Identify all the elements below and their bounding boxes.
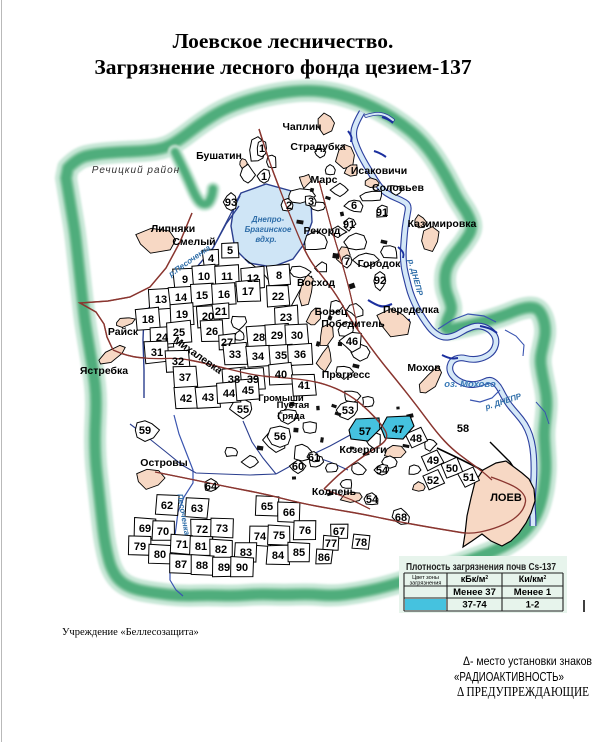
svg-text:93: 93: [225, 197, 237, 209]
svg-text:76: 76: [299, 525, 311, 537]
svg-text:28: 28: [253, 332, 265, 344]
svg-text:Менее 37: Менее 37: [453, 587, 496, 598]
svg-text:59: 59: [139, 425, 151, 437]
svg-text:52: 52: [427, 475, 439, 487]
svg-text:62: 62: [161, 500, 173, 512]
svg-text:Чаплин: Чаплин: [282, 121, 321, 133]
svg-text:1: 1: [259, 143, 265, 155]
svg-text:46: 46: [346, 336, 358, 348]
svg-text:71: 71: [176, 539, 188, 551]
svg-text:56: 56: [274, 431, 286, 443]
svg-text:84: 84: [272, 550, 285, 562]
svg-text:Менее 1: Менее 1: [514, 587, 552, 598]
svg-text:32: 32: [172, 356, 184, 368]
svg-text:72: 72: [196, 524, 208, 536]
svg-text:70: 70: [157, 526, 169, 538]
svg-text:Страдубка: Страдубка: [290, 141, 345, 153]
svg-text:вдхр.: вдхр.: [255, 235, 276, 244]
svg-text:Днепро-: Днепро-: [251, 215, 285, 224]
svg-text:Островы: Островы: [140, 457, 187, 469]
svg-text:2: 2: [286, 200, 292, 212]
svg-text:81: 81: [195, 541, 207, 553]
svg-text:61: 61: [308, 452, 320, 464]
svg-text:67: 67: [333, 526, 345, 538]
svg-text:91: 91: [343, 219, 355, 231]
svg-text:Плотность загрязнения почв Cs-: Плотность загрязнения почв Cs-137: [406, 562, 556, 573]
svg-text:45: 45: [242, 385, 254, 397]
svg-text:Ястребка: Ястребка: [80, 365, 128, 377]
svg-text:37: 37: [179, 372, 191, 384]
svg-text:Бушатин: Бушатин: [196, 150, 242, 162]
svg-text:63: 63: [191, 503, 203, 515]
svg-text:Липняки: Липняки: [151, 223, 195, 235]
svg-text:Козероги: Козероги: [339, 444, 386, 456]
svg-text:загрязнения: загрязнения: [410, 581, 442, 587]
svg-text:ЛОЕВ: ЛОЕВ: [490, 492, 522, 504]
svg-text:Соловьев: Соловьев: [372, 182, 424, 194]
svg-text:85: 85: [293, 547, 305, 559]
svg-text:41: 41: [298, 380, 310, 392]
svg-text:5: 5: [227, 245, 233, 257]
svg-text:11: 11: [221, 271, 233, 283]
svg-text:29: 29: [271, 330, 283, 342]
svg-text:27: 27: [221, 337, 233, 349]
svg-text:Рекорд: Рекорд: [304, 225, 341, 237]
svg-text:7: 7: [344, 256, 350, 268]
svg-text:Казимировка: Казимировка: [408, 218, 477, 230]
svg-text:90: 90: [236, 562, 248, 574]
svg-text:Победитель: Победитель: [321, 318, 385, 330]
svg-text:49: 49: [427, 455, 439, 467]
svg-text:91: 91: [376, 207, 388, 219]
svg-text:33: 33: [229, 349, 241, 361]
svg-text:82: 82: [215, 544, 227, 556]
svg-text:77: 77: [325, 538, 337, 550]
svg-text:8: 8: [276, 270, 282, 282]
svg-text:24: 24: [156, 332, 169, 344]
svg-text:51: 51: [463, 472, 475, 484]
svg-text:19: 19: [176, 309, 188, 321]
svg-text:38: 38: [228, 374, 240, 386]
svg-text:Восход: Восход: [297, 277, 335, 289]
svg-text:30: 30: [291, 330, 303, 342]
svg-text:53: 53: [342, 405, 354, 417]
svg-text:Брагинское: Брагинское: [245, 225, 292, 234]
svg-text:22: 22: [272, 291, 284, 303]
svg-text:26: 26: [206, 326, 218, 338]
svg-text:44: 44: [223, 388, 236, 400]
svg-text:12: 12: [247, 273, 259, 285]
svg-text:Мохов: Мохов: [407, 362, 441, 374]
svg-text:16: 16: [218, 289, 230, 301]
svg-text:Прогресс: Прогресс: [322, 369, 371, 381]
svg-text:47: 47: [392, 424, 404, 436]
svg-text:68: 68: [395, 512, 407, 524]
svg-text:55: 55: [237, 404, 249, 416]
svg-text:80: 80: [154, 549, 166, 561]
svg-text:кБк/м2: кБк/м2: [461, 574, 489, 584]
svg-text:64: 64: [205, 481, 218, 493]
svg-text:18: 18: [142, 314, 154, 326]
svg-text:31: 31: [151, 347, 163, 359]
svg-text:60: 60: [292, 461, 304, 473]
svg-text:78: 78: [355, 537, 367, 549]
svg-text:74: 74: [254, 531, 267, 543]
svg-text:92: 92: [374, 275, 386, 287]
svg-text:1-2: 1-2: [526, 600, 540, 611]
svg-text:Райск: Райск: [108, 326, 139, 338]
svg-text:15: 15: [196, 290, 208, 302]
svg-text:86: 86: [318, 552, 330, 564]
svg-text:Речицкий район: Речицкий район: [92, 165, 180, 176]
svg-text:оз. Мохово: оз. Мохово: [444, 379, 496, 390]
svg-text:75: 75: [273, 530, 285, 542]
svg-text:50: 50: [446, 463, 458, 475]
svg-text:37-74: 37-74: [462, 600, 487, 611]
svg-text:Смелый: Смелый: [172, 236, 215, 248]
svg-text:57: 57: [359, 426, 371, 438]
svg-text:40: 40: [275, 369, 287, 381]
svg-text:Учреждение «Беллесозащита»: Учреждение «Беллесозащита»: [62, 627, 199, 638]
svg-text:88: 88: [196, 560, 208, 572]
svg-text:Δ ПРЕДУПРЕЖДАЮЩИЕ: Δ ПРЕДУПРЕЖДАЮЩИЕ: [457, 685, 589, 700]
svg-text:54: 54: [376, 465, 389, 477]
svg-text:6: 6: [351, 200, 357, 212]
svg-text:79: 79: [134, 541, 146, 553]
svg-text:Ки/км2: Ки/км2: [519, 574, 547, 584]
svg-text:13: 13: [155, 294, 167, 306]
svg-text:65: 65: [261, 501, 273, 513]
svg-text:Городок: Городок: [358, 258, 402, 270]
svg-text:3: 3: [308, 196, 314, 208]
svg-text:66: 66: [283, 507, 295, 519]
svg-text:83: 83: [240, 547, 252, 559]
svg-text:10: 10: [198, 271, 210, 283]
svg-text:73: 73: [216, 523, 228, 535]
svg-text:35: 35: [275, 350, 287, 362]
svg-text:Марс: Марс: [311, 174, 338, 186]
svg-text:23: 23: [280, 312, 292, 324]
svg-text:69: 69: [139, 523, 151, 535]
svg-text:21: 21: [215, 306, 227, 318]
svg-text:«РАДИОАКТИВНОСТЬ»: «РАДИОАКТИВНОСТЬ»: [454, 670, 564, 684]
svg-text:89: 89: [218, 562, 230, 574]
svg-text:17: 17: [242, 286, 254, 298]
svg-text:9: 9: [182, 274, 188, 286]
svg-text:42: 42: [180, 393, 192, 405]
svg-text:20: 20: [202, 311, 214, 323]
svg-text:1: 1: [261, 171, 267, 183]
svg-text:Δ- место установки знаков: Δ- место установки знаков: [463, 654, 592, 668]
svg-text:36: 36: [294, 349, 306, 361]
svg-text:43: 43: [202, 392, 214, 404]
svg-text:Исаковичи: Исаковичи: [351, 165, 407, 177]
svg-text:4: 4: [208, 253, 215, 265]
svg-text:Колпень: Колпень: [312, 486, 357, 498]
svg-text:Гряда: Гряда: [277, 411, 305, 422]
svg-text:14: 14: [175, 292, 188, 304]
svg-text:Пустая: Пустая: [277, 400, 310, 411]
svg-text:58: 58: [457, 423, 469, 435]
svg-text:54: 54: [366, 494, 379, 506]
svg-text:87: 87: [175, 559, 187, 571]
svg-text:Переделка: Переделка: [383, 304, 439, 316]
svg-text:Борец: Борец: [315, 306, 348, 318]
svg-text:48: 48: [410, 433, 422, 445]
svg-text:34: 34: [252, 351, 265, 363]
